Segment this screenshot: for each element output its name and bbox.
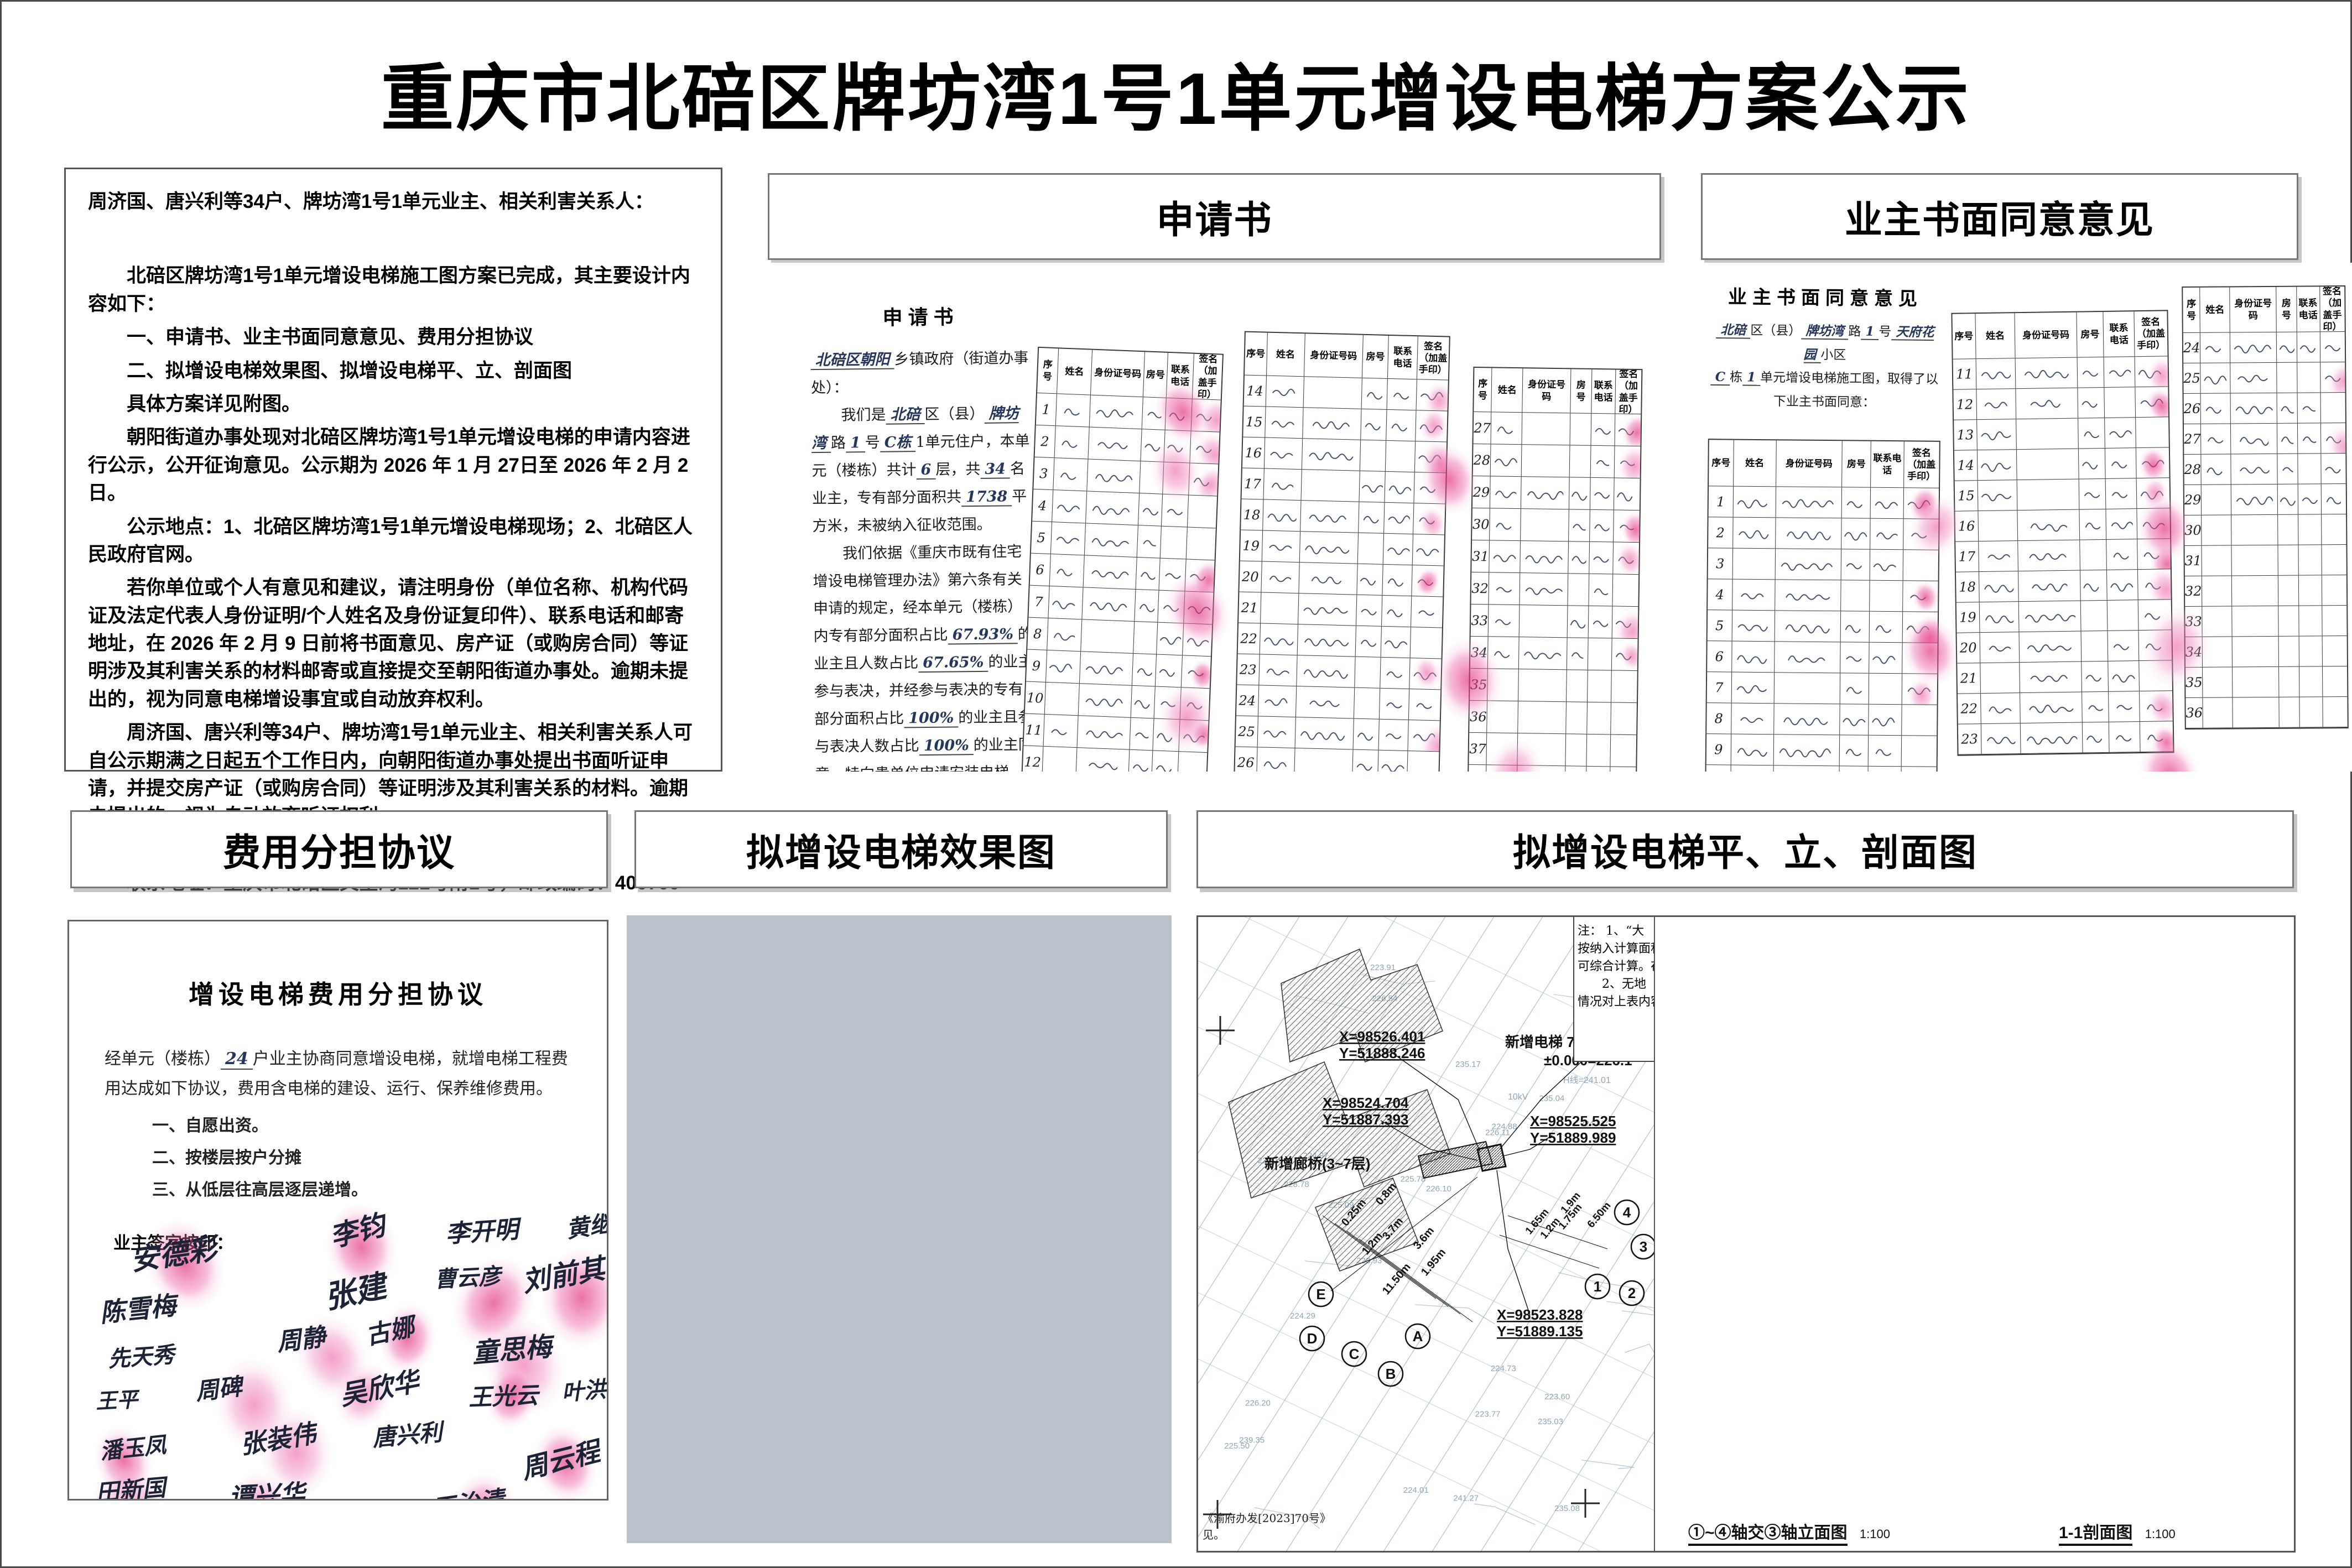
table-cell — [2135, 356, 2168, 387]
table-cell — [1774, 704, 1840, 734]
cost-agreement-scan: 增设电梯费用分担协议 经单元（楼栋）24户业主协商同意增设电梯，就增电梯工程费用… — [67, 920, 608, 1501]
table-cell — [1043, 715, 1079, 747]
table-row: 30 — [1472, 508, 1640, 543]
table-row: 21 — [1957, 660, 2172, 694]
table-cell — [1981, 693, 2021, 723]
table-cell — [1981, 723, 2021, 754]
table-row: 34 — [1470, 637, 1638, 671]
table-cell — [1731, 673, 1774, 704]
panel-header-cost: 费用分担协议 — [70, 810, 608, 888]
table-cell — [2018, 510, 2080, 541]
table-cell — [1979, 541, 2019, 571]
owner-signature: 先天秀 — [107, 1337, 175, 1373]
table-cell — [1487, 669, 1519, 701]
table-row: 25 — [1236, 716, 1440, 752]
owner-signature: 张建 — [320, 1261, 389, 1318]
table-cell: 14 — [1954, 450, 1978, 481]
table-cell: 15 — [1955, 481, 1978, 511]
table-header-cell: 姓名 — [2200, 287, 2231, 332]
table-cell — [1612, 638, 1638, 670]
table-cell: 29 — [1472, 476, 1491, 508]
table-cell — [1870, 550, 1903, 581]
table-cell: 12 — [1022, 746, 1043, 772]
table-cell — [1257, 716, 1295, 748]
table-cell — [2139, 660, 2172, 691]
table-cell — [1416, 410, 1447, 441]
table-cell — [2278, 576, 2299, 606]
table-cell — [2016, 388, 2078, 419]
cost-body: 经单元（楼栋）24户业主协商同意增设电梯，就增电梯工程费用达成如下协议，费用含电… — [105, 1044, 571, 1104]
panel-header-application: 申请书 — [768, 173, 1661, 260]
owner-signature: 田新国 — [95, 1469, 167, 1501]
table-cell — [2202, 454, 2231, 484]
panel-header-consent-label: 业主书面同意意见 — [1845, 189, 2155, 244]
table-cell — [1487, 701, 1519, 733]
table-cell — [1086, 491, 1139, 525]
table-cell — [2203, 667, 2233, 697]
table-cell: 27 — [2184, 424, 2202, 454]
table-cell: 20 — [1239, 561, 1262, 592]
table-cell — [1591, 414, 1615, 446]
table-header-cell: 签名（加盖手印） — [1193, 354, 1222, 400]
table-cell — [1183, 623, 1212, 656]
table-cell — [1902, 705, 1937, 736]
table-cell: 20 — [1957, 633, 1980, 663]
svg-text:E: E — [1316, 1286, 1325, 1303]
printed-text: 经单元（楼栋） — [105, 1049, 221, 1069]
table-cell — [1487, 733, 1518, 765]
table-cell — [1869, 674, 1902, 705]
table-cell — [1153, 718, 1180, 751]
table-cell — [1184, 591, 1214, 624]
panel-header-drawings: 拟增设电梯平、立、剖面图 — [1196, 810, 2294, 888]
table-cell — [1258, 685, 1296, 717]
table-cell: 30 — [1472, 508, 1490, 540]
table-cell: 35 — [2186, 668, 2203, 697]
table-cell — [2320, 362, 2345, 392]
table-row: 23 — [1237, 654, 1441, 690]
table-row: 35 — [1470, 669, 1637, 703]
site-plan: 223.60223.77223.91223.93224.01224.29224.… — [1198, 917, 1655, 1551]
table-cell — [2278, 606, 2299, 636]
table-cell — [1137, 525, 1162, 558]
table-cell — [2109, 722, 2140, 752]
owner-signature: 童思梅 — [470, 1325, 553, 1370]
table-cell — [2230, 332, 2277, 363]
table-cell — [2321, 484, 2346, 514]
table-cell — [1589, 574, 1613, 606]
handwritten-fill: 24 — [221, 1049, 253, 1070]
table-cell — [1871, 488, 1904, 519]
svg-text:H线=241.01: H线=241.01 — [1563, 1075, 1611, 1085]
table-cell — [1416, 379, 1448, 410]
table-cell — [2277, 424, 2298, 454]
table-cell — [2137, 539, 2171, 569]
table-cell — [2106, 478, 2137, 509]
table-cell: 26 — [2184, 394, 2202, 424]
table-cell — [1412, 565, 1443, 596]
table-header-cell: 身份证号码 — [1523, 368, 1572, 413]
table-cell — [2232, 545, 2278, 576]
table-cell — [2299, 666, 2323, 696]
table-cell: 28 — [1473, 444, 1491, 476]
table-row: 27 — [1474, 412, 1641, 446]
table-cell — [1300, 501, 1360, 533]
table-cell — [2077, 357, 2104, 388]
table-cell — [2135, 387, 2168, 417]
table-cell — [2021, 723, 2083, 754]
panel-header-consent: 业主书面同意意见 — [1701, 173, 2298, 260]
table-cell — [2299, 606, 2322, 635]
table-cell — [1302, 439, 1361, 471]
table-cell — [1295, 717, 1354, 749]
table-row: 17 — [1242, 468, 1446, 504]
table-cell — [1615, 446, 1641, 478]
svg-text:Y=51887.393: Y=51887.393 — [1323, 1111, 1408, 1128]
owner-signature: 王光云 — [468, 1377, 539, 1413]
table-cell — [2232, 515, 2278, 545]
table-cell — [1588, 606, 1612, 638]
table-row: 3 — [1708, 548, 1938, 581]
table-cell: 34 — [2186, 637, 2203, 667]
table-cell — [1612, 574, 1638, 606]
table-cell — [1051, 522, 1086, 555]
owner-signature: 唐兴利 — [371, 1414, 444, 1454]
table-cell — [1903, 488, 1939, 519]
notice-paragraph: 周济国、唐兴利等34户、牌坊湾1号1单元业主、相关利害关系人： — [88, 188, 699, 216]
table-cell — [1518, 669, 1567, 701]
table-cell — [1133, 622, 1158, 654]
table-header-cell: 房号 — [1570, 369, 1592, 413]
table-header-cell: 房号 — [1842, 441, 1871, 487]
table-header-cell: 联系电话 — [1871, 441, 1904, 488]
table-cell — [1158, 591, 1185, 623]
elevation-drawings: ①~④轴交③轴立面图 1:100 1-1剖面图 1:100 — [1655, 917, 2294, 1551]
table-cell: 18 — [1956, 572, 1979, 602]
poster: 重庆市北碚区牌坊湾1号1单元增设电梯方案公示 周济国、唐兴利等34户、牌坊湾1号… — [0, 0, 2352, 1568]
table-cell — [2080, 570, 2108, 601]
table-cell: 9 — [1026, 650, 1047, 682]
elevation-caption-right-scale: 1:100 — [2145, 1527, 2176, 1541]
table-cell: 26 — [1235, 747, 1257, 772]
owner-signature: 刘前其 — [519, 1247, 607, 1300]
table-cell — [1733, 487, 1776, 518]
table-cell — [2299, 575, 2322, 605]
table-cell — [2080, 540, 2107, 570]
table-cell — [2080, 601, 2108, 631]
table-row: 18 — [1241, 499, 1445, 535]
table-cell — [2202, 515, 2231, 545]
table-cell — [2081, 631, 2108, 661]
table-cell — [1380, 658, 1410, 689]
table-cell — [2202, 576, 2232, 606]
consent-intro-2: C栋1单元增设电梯施工图，取得了以下业主书面同意： — [1708, 366, 1941, 415]
table-header-cell: 联系电话 — [1388, 336, 1418, 379]
table-cell: 32 — [2185, 576, 2203, 606]
printed-text: 路 — [1848, 324, 1861, 338]
table-cell — [2323, 697, 2348, 727]
table-cell — [2109, 691, 2140, 722]
table-cell: 10 — [1706, 765, 1731, 772]
table-cell — [1587, 702, 1611, 734]
table-header-cell: 身份证号码 — [2015, 312, 2077, 358]
svg-text:X=98526.401: X=98526.401 — [1339, 1028, 1425, 1045]
table-cell — [1178, 752, 1208, 772]
owner-signature: 吴欣华 — [336, 1359, 422, 1413]
cost-item: 一、自愿出资。 — [152, 1112, 607, 1136]
table-cell: 17 — [1955, 541, 1979, 572]
table-cell — [1490, 476, 1522, 508]
notice-paragraph: 若你单位或个人有意见和建议，请注明身份（单位名称、机构代码证及法定代表人身份证明… — [88, 574, 699, 713]
photo-graphic — [627, 915, 1172, 1543]
table-cell — [1047, 618, 1083, 651]
table-cell — [1980, 632, 2020, 663]
elevation-caption-right-text: 1-1剖面图 — [2059, 1524, 2132, 1546]
table-cell: 37 — [1469, 733, 1487, 764]
table-cell — [2108, 600, 2138, 631]
printed-text: 层，共 — [935, 461, 980, 478]
table-cell — [2202, 485, 2231, 514]
table-cell — [2231, 393, 2277, 424]
owner-signature: 周碑 — [194, 1368, 244, 1407]
table-cell — [1360, 471, 1386, 502]
application-letter: 申请书 北碚区朝阳乡镇政府（街道办事处）：我们是北碚区（县）牌坊湾路1号C栋1单… — [810, 300, 1037, 772]
table-cell — [2277, 393, 2298, 423]
owner-signature: 王治清 — [429, 1480, 507, 1501]
table-cell — [1869, 643, 1902, 674]
table-cell — [2299, 636, 2322, 666]
table-row: 11 — [1953, 356, 2168, 389]
table-cell: 21 — [1957, 663, 1980, 694]
table-cell — [2140, 691, 2173, 721]
table-cell — [1870, 519, 1903, 550]
table-header-cell: 房号 — [1143, 352, 1168, 398]
table-cell — [1191, 399, 1221, 432]
table-cell — [2017, 480, 2079, 510]
svg-text:224.29: 224.29 — [1290, 1311, 1315, 1321]
table-cell — [1084, 555, 1137, 589]
table-header-cell: 姓名 — [1057, 348, 1093, 394]
table-cell: 18 — [1241, 499, 1263, 530]
table-cell — [1413, 534, 1444, 565]
table-row: 28 — [1473, 444, 1641, 478]
consent-letter-head: 业主书面同意意见 北碚区（县）牌坊湾路1号天府花园小区 C栋1单元增设电梯施工图… — [1708, 282, 1942, 415]
table-cell — [2298, 514, 2322, 544]
table-cell — [1732, 580, 1775, 611]
table-cell — [2297, 332, 2320, 362]
table-cell — [1411, 627, 1442, 658]
table-cell — [1731, 765, 1773, 772]
table-cell — [2278, 485, 2298, 514]
table-cell — [2233, 697, 2280, 728]
handwritten-fill: 67.65% — [918, 654, 988, 673]
table-cell — [1415, 441, 1446, 472]
table-cell — [1520, 573, 1568, 605]
table-cell — [2137, 478, 2170, 508]
table-cell — [2321, 454, 2346, 483]
table-cell — [1380, 689, 1409, 720]
table-cell — [2322, 606, 2347, 635]
table-header-cell: 身份证号码 — [1776, 440, 1843, 487]
table-cell — [1054, 426, 1090, 459]
owner-signature: 周云程 — [517, 1430, 603, 1487]
table-cell: 36 — [1469, 701, 1487, 732]
application-letter-line: 北碚区朝阳乡镇政府（街道办事处）： — [810, 345, 1032, 402]
table-cell — [1775, 580, 1841, 611]
table-row: 22 — [1958, 691, 2173, 724]
table-cell — [1413, 503, 1445, 534]
table-cell: 11 — [1953, 359, 1976, 389]
table-row: 31 — [2184, 545, 2346, 576]
table-cell — [1257, 747, 1295, 772]
table-cell — [1840, 642, 1870, 673]
table-cell — [2018, 571, 2080, 602]
owner-signature: 张装伟 — [237, 1414, 319, 1462]
table-cell — [1361, 409, 1387, 440]
table-cell — [1179, 720, 1209, 752]
svg-text:6.50m: 6.50m — [1585, 1200, 1614, 1230]
consent-title: 业主书面同意意见 — [1709, 282, 1942, 311]
table-cell — [1262, 530, 1300, 562]
table-cell: 15 — [1243, 407, 1266, 437]
table-cell — [1360, 440, 1386, 471]
table-cell: 31 — [1471, 540, 1490, 572]
table-row: 27 — [2184, 423, 2345, 455]
table-cell — [1296, 686, 1355, 718]
table-cell — [1142, 397, 1167, 430]
table-cell — [2082, 661, 2109, 692]
table-cell — [1163, 462, 1190, 495]
table-header-cell: 签名（加盖手印） — [2320, 286, 2345, 331]
table-cell — [1979, 602, 2020, 632]
table-row: 23 — [1958, 721, 2173, 754]
table-row: 26 — [1235, 747, 1439, 772]
table-row: 20 — [1957, 630, 2172, 663]
table-cell — [1614, 510, 1640, 542]
table-cell — [2202, 545, 2232, 575]
table-cell — [2277, 454, 2298, 484]
table-row: 1 — [1709, 486, 1939, 519]
table-cell — [2082, 692, 2109, 722]
svg-text:2: 2 — [1628, 1285, 1636, 1301]
svg-text:A: A — [1413, 1328, 1423, 1345]
elevation-caption-right: 1-1剖面图 1:100 — [2059, 1519, 2176, 1543]
table-cell — [1774, 673, 1840, 704]
table-cell — [1613, 542, 1639, 574]
table-cell — [1902, 643, 1938, 674]
printed-text: 小区 — [1820, 347, 1846, 362]
table-cell — [1362, 378, 1388, 409]
table-cell — [1590, 478, 1615, 510]
table-cell: 5 — [1031, 522, 1052, 554]
table-cell: 16 — [1242, 437, 1265, 468]
printed-text: 区（县） — [924, 405, 984, 423]
table-row: 33 — [1471, 605, 1638, 639]
table-cell — [2136, 417, 2169, 447]
owner-signature: 潘玉凤 — [98, 1427, 167, 1466]
table-cell — [1260, 623, 1298, 655]
table-cell — [1590, 510, 1614, 542]
svg-text:226.11: 226.11 — [1485, 1128, 1510, 1137]
table-cell — [2233, 667, 2279, 697]
table-cell — [2233, 637, 2279, 667]
table-cell — [1841, 580, 1870, 611]
table-row: 24 — [2183, 332, 2345, 363]
handwritten-fill: 牌坊湾 — [1801, 324, 1848, 340]
table-cell — [1188, 496, 1217, 528]
table-cell — [1303, 377, 1362, 409]
table-cell — [1521, 541, 1569, 573]
table-cell — [1732, 549, 1775, 580]
table-cell — [2201, 363, 2231, 393]
table-cell — [1568, 606, 1589, 638]
table-cell — [1053, 458, 1089, 491]
table-cell — [1141, 429, 1165, 462]
svg-text:C: C — [1349, 1346, 1360, 1362]
table-cell — [1161, 527, 1188, 559]
table-cell — [1078, 716, 1131, 749]
table-cell — [1522, 445, 1570, 477]
table-cell — [1840, 673, 1870, 704]
table-row: 17 — [1955, 539, 2171, 572]
table-cell — [1187, 528, 1216, 560]
table-cell: 7 — [1028, 586, 1049, 618]
table-cell — [1162, 494, 1189, 527]
table-cell — [1136, 558, 1161, 590]
svg-text:新增廊桥(3~7层): 新增廊桥(3~7层) — [1265, 1155, 1370, 1172]
panel-header-application-label: 申请书 — [1156, 189, 1272, 244]
application-letter-line: 我们依据《重庆市既有住宅增设电梯管理办法》第六条有关申请的规定，经本单元（楼栋）… — [813, 538, 1037, 772]
table-cell — [1352, 750, 1378, 772]
handwritten-fill: 34 — [980, 460, 1010, 479]
owner-signature: 叶洪清 — [560, 1369, 608, 1407]
table-cell — [2021, 692, 2083, 723]
table-cell — [1259, 654, 1297, 686]
table-cell — [1087, 460, 1141, 493]
table-cell — [1901, 736, 1937, 767]
application-letter-title: 申请书 — [810, 300, 1032, 331]
table-header-cell: 联系电话 — [1591, 369, 1616, 414]
svg-text:Y=51889.135: Y=51889.135 — [1497, 1323, 1583, 1340]
table-row: 32 — [2185, 575, 2346, 607]
elevation-caption-left: ①~④轴交③轴立面图 1:100 — [1688, 1519, 1890, 1543]
table-cell — [1775, 611, 1841, 642]
table-cell: 3 — [1708, 548, 1733, 579]
table-cell: 6 — [1030, 554, 1051, 586]
table-cell — [2106, 509, 2137, 539]
owner-signature: 李开明 — [444, 1209, 519, 1249]
table-cell — [2140, 721, 2173, 752]
table-cell — [1521, 477, 1569, 509]
handwritten-fill: 100% — [904, 710, 958, 728]
owner-signature: 谭兴华 — [227, 1473, 305, 1501]
table-cell — [1776, 487, 1842, 518]
table-cell — [1488, 637, 1520, 669]
svg-text:226.10: 226.10 — [1426, 1184, 1451, 1194]
handwritten-fill: 1 — [1742, 370, 1760, 386]
table-cell — [2203, 697, 2233, 727]
table-cell — [1773, 765, 1840, 772]
table-cell — [2231, 454, 2278, 485]
table-cell — [2233, 606, 2279, 637]
table-cell — [1489, 605, 1520, 637]
table-cell: 17 — [1242, 468, 1265, 499]
table-cell — [1055, 394, 1091, 426]
table-cell — [1901, 767, 1937, 772]
table-cell: 8 — [1027, 618, 1048, 650]
table-cell: 33 — [2185, 607, 2203, 637]
handwritten-fill: 北碚 — [886, 406, 924, 425]
